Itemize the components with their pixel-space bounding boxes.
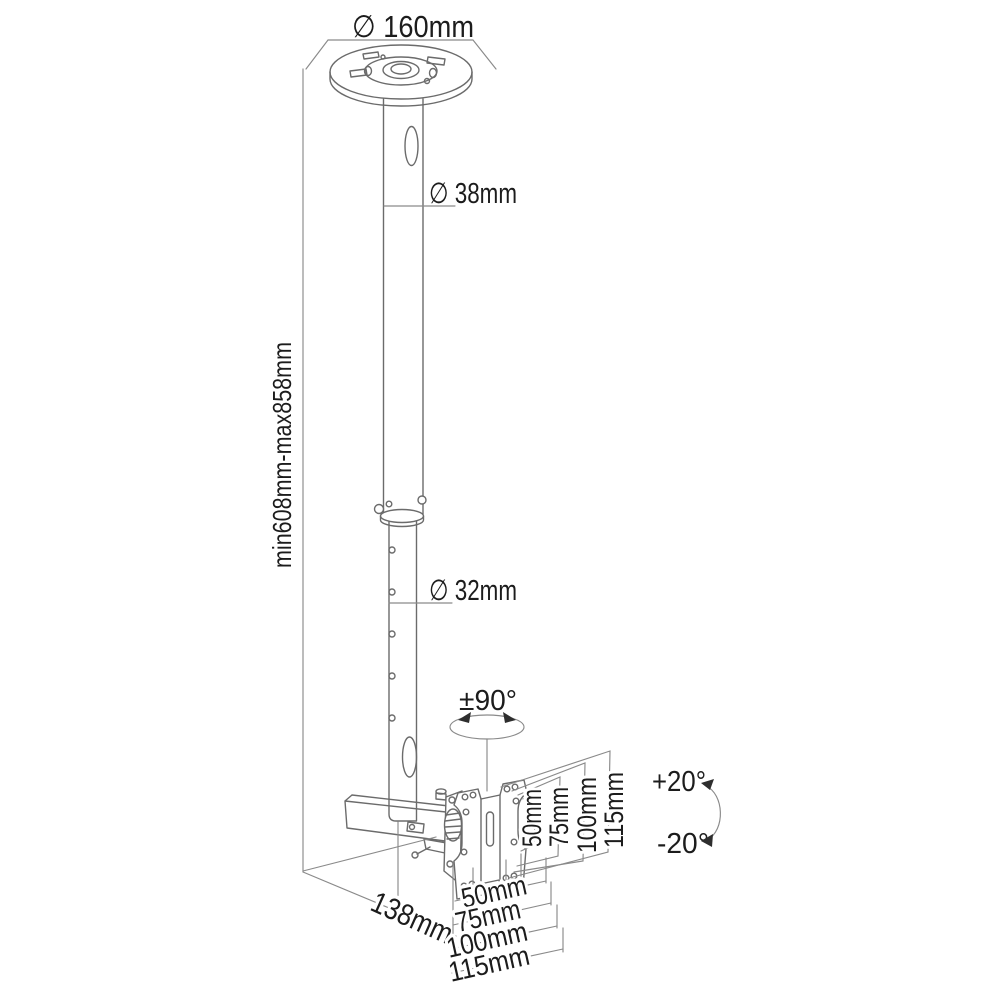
vesa-vertical-label-75: 75mm bbox=[544, 787, 574, 847]
tilt-down-label: -20° bbox=[657, 828, 709, 860]
dimension-height-range: min608mm-max858mm bbox=[267, 69, 303, 872]
collar-lock-knob bbox=[375, 505, 384, 514]
vesa-vertical-label-115: 115mm bbox=[599, 772, 629, 848]
swivel-indicator: ±90° bbox=[450, 685, 524, 791]
swivel-label: ±90° bbox=[459, 685, 517, 717]
upper-pole bbox=[384, 99, 424, 514]
depth-label: 138mm bbox=[366, 886, 458, 951]
tilt-indicator: +20° -20° bbox=[652, 766, 720, 860]
vesa-vertical-label-100: 100mm bbox=[572, 777, 602, 853]
ceiling-plate bbox=[330, 45, 472, 106]
plate-diameter-label: ∅ 160mm bbox=[352, 9, 474, 44]
diagram-page: ∅ 160mm ∅ 38mm min608mm-max858mm ∅ 32mm bbox=[0, 0, 1000, 1000]
height-range-label: min608mm-max858mm bbox=[267, 342, 297, 568]
upper-tube-diameter-label: ∅ 38mm bbox=[429, 178, 517, 210]
lower-pole bbox=[389, 520, 417, 821]
tilt-up-label: +20° bbox=[652, 766, 706, 798]
vesa-vertical-label-50: 50mm bbox=[517, 789, 547, 847]
lower-tube-diameter-label: ∅ 32mm bbox=[429, 575, 517, 607]
diagram-canvas: ∅ 160mm ∅ 38mm min608mm-max858mm ∅ 32mm bbox=[0, 0, 1000, 1000]
collar-lock-knob bbox=[418, 496, 426, 504]
